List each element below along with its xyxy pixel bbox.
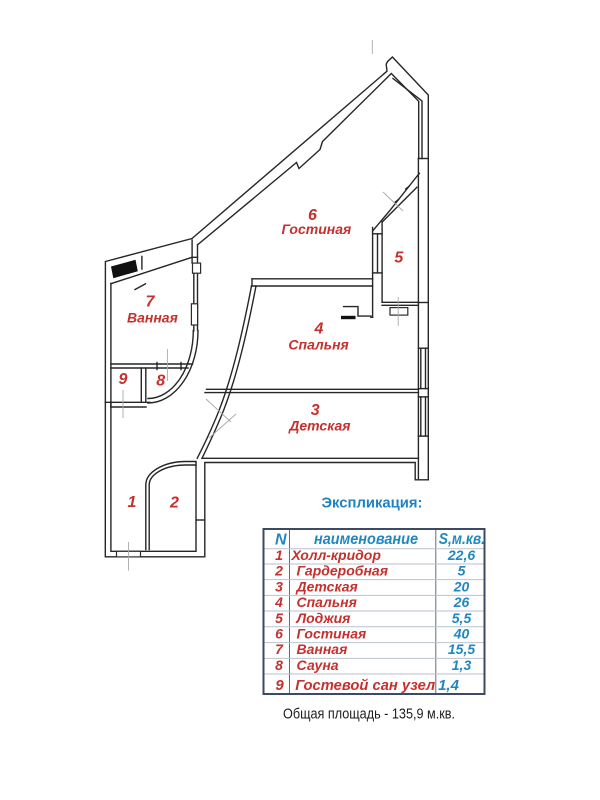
svg-text:Детская: Детская: [288, 418, 350, 434]
svg-text:2: 2: [274, 563, 283, 579]
svg-text:15,5: 15,5: [448, 641, 475, 657]
svg-text:Детская: Детская: [296, 578, 358, 594]
svg-text:40: 40: [453, 626, 470, 642]
svg-text:5: 5: [275, 610, 283, 626]
svg-text:8: 8: [275, 657, 283, 673]
svg-text:9: 9: [275, 677, 284, 694]
svg-text:1,4: 1,4: [438, 677, 460, 694]
svg-text:Сауна: Сауна: [297, 657, 339, 673]
svg-text:4: 4: [274, 594, 283, 610]
svg-text:Гостевой сан узел: Гостевой сан узел: [295, 677, 436, 694]
svg-text:Гостиная: Гостиная: [282, 221, 352, 237]
svg-text:Спальня: Спальня: [288, 336, 348, 352]
svg-text:9: 9: [119, 371, 128, 388]
svg-text:Экспликация:: Экспликация:: [322, 495, 423, 512]
svg-text:5: 5: [458, 563, 466, 579]
svg-text:N: N: [275, 532, 287, 549]
svg-text:3: 3: [275, 578, 283, 594]
svg-text:Гостиная: Гостиная: [297, 626, 367, 642]
svg-text:6: 6: [275, 626, 283, 642]
svg-text:7: 7: [275, 641, 284, 657]
svg-text:Холл-кридор: Холл-кридор: [291, 547, 382, 563]
svg-text:Гардеробная: Гардеробная: [297, 563, 388, 579]
svg-text:8: 8: [156, 373, 165, 390]
svg-text:Спальня: Спальня: [297, 594, 357, 610]
svg-text:Ванная: Ванная: [127, 310, 178, 326]
svg-text:1: 1: [128, 494, 137, 511]
svg-text:Общая площадь - 135,9 м.кв.: Общая площадь - 135,9 м.кв.: [283, 707, 455, 723]
svg-text:Лоджия: Лоджия: [296, 610, 351, 626]
svg-text:3: 3: [311, 402, 320, 419]
svg-text:5,5: 5,5: [452, 610, 472, 626]
svg-text:7: 7: [146, 294, 156, 311]
svg-text:1: 1: [275, 547, 283, 563]
svg-text:26: 26: [453, 594, 470, 610]
svg-text:Ванная: Ванная: [297, 641, 348, 657]
svg-text:20: 20: [453, 578, 470, 594]
svg-text:5: 5: [394, 249, 404, 266]
svg-text:2: 2: [169, 495, 179, 512]
svg-text:1,3: 1,3: [452, 657, 472, 673]
svg-text:22,6: 22,6: [447, 547, 475, 563]
svg-text:4: 4: [314, 321, 324, 338]
svg-text:S,м.кв.: S,м.кв.: [439, 531, 485, 548]
svg-text:наименование: наименование: [314, 531, 418, 548]
